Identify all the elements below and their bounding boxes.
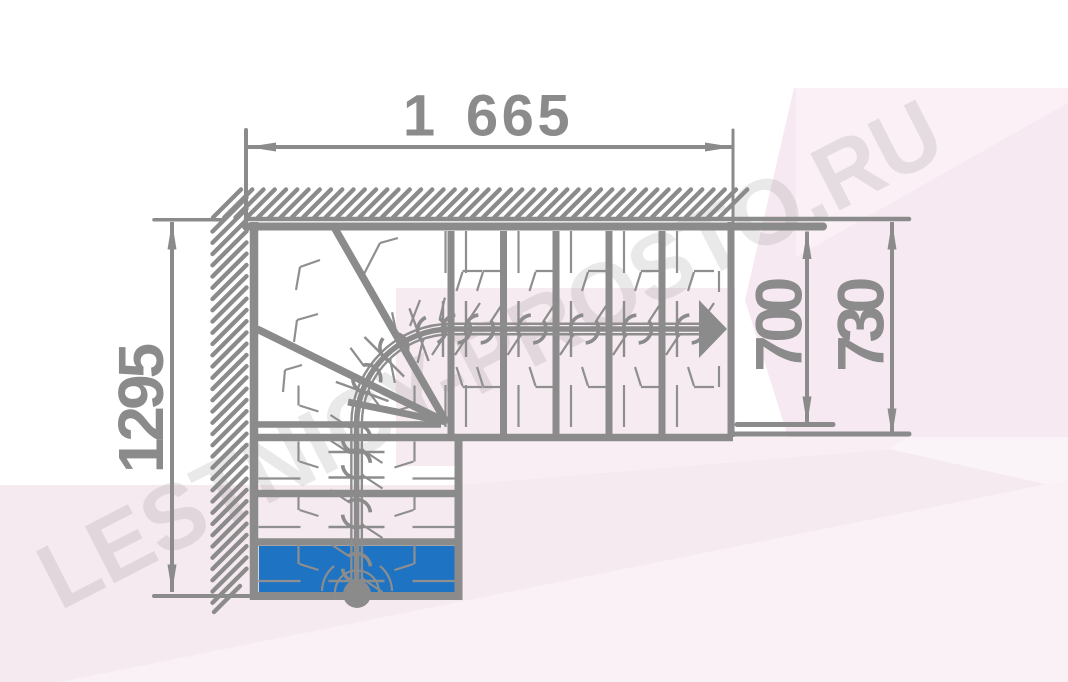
- svg-text:700: 700: [742, 279, 816, 371]
- svg-text:1: 1: [403, 84, 435, 149]
- svg-text:665: 665: [466, 84, 573, 149]
- svg-text:1295: 1295: [105, 344, 177, 473]
- svg-text:730: 730: [824, 279, 898, 371]
